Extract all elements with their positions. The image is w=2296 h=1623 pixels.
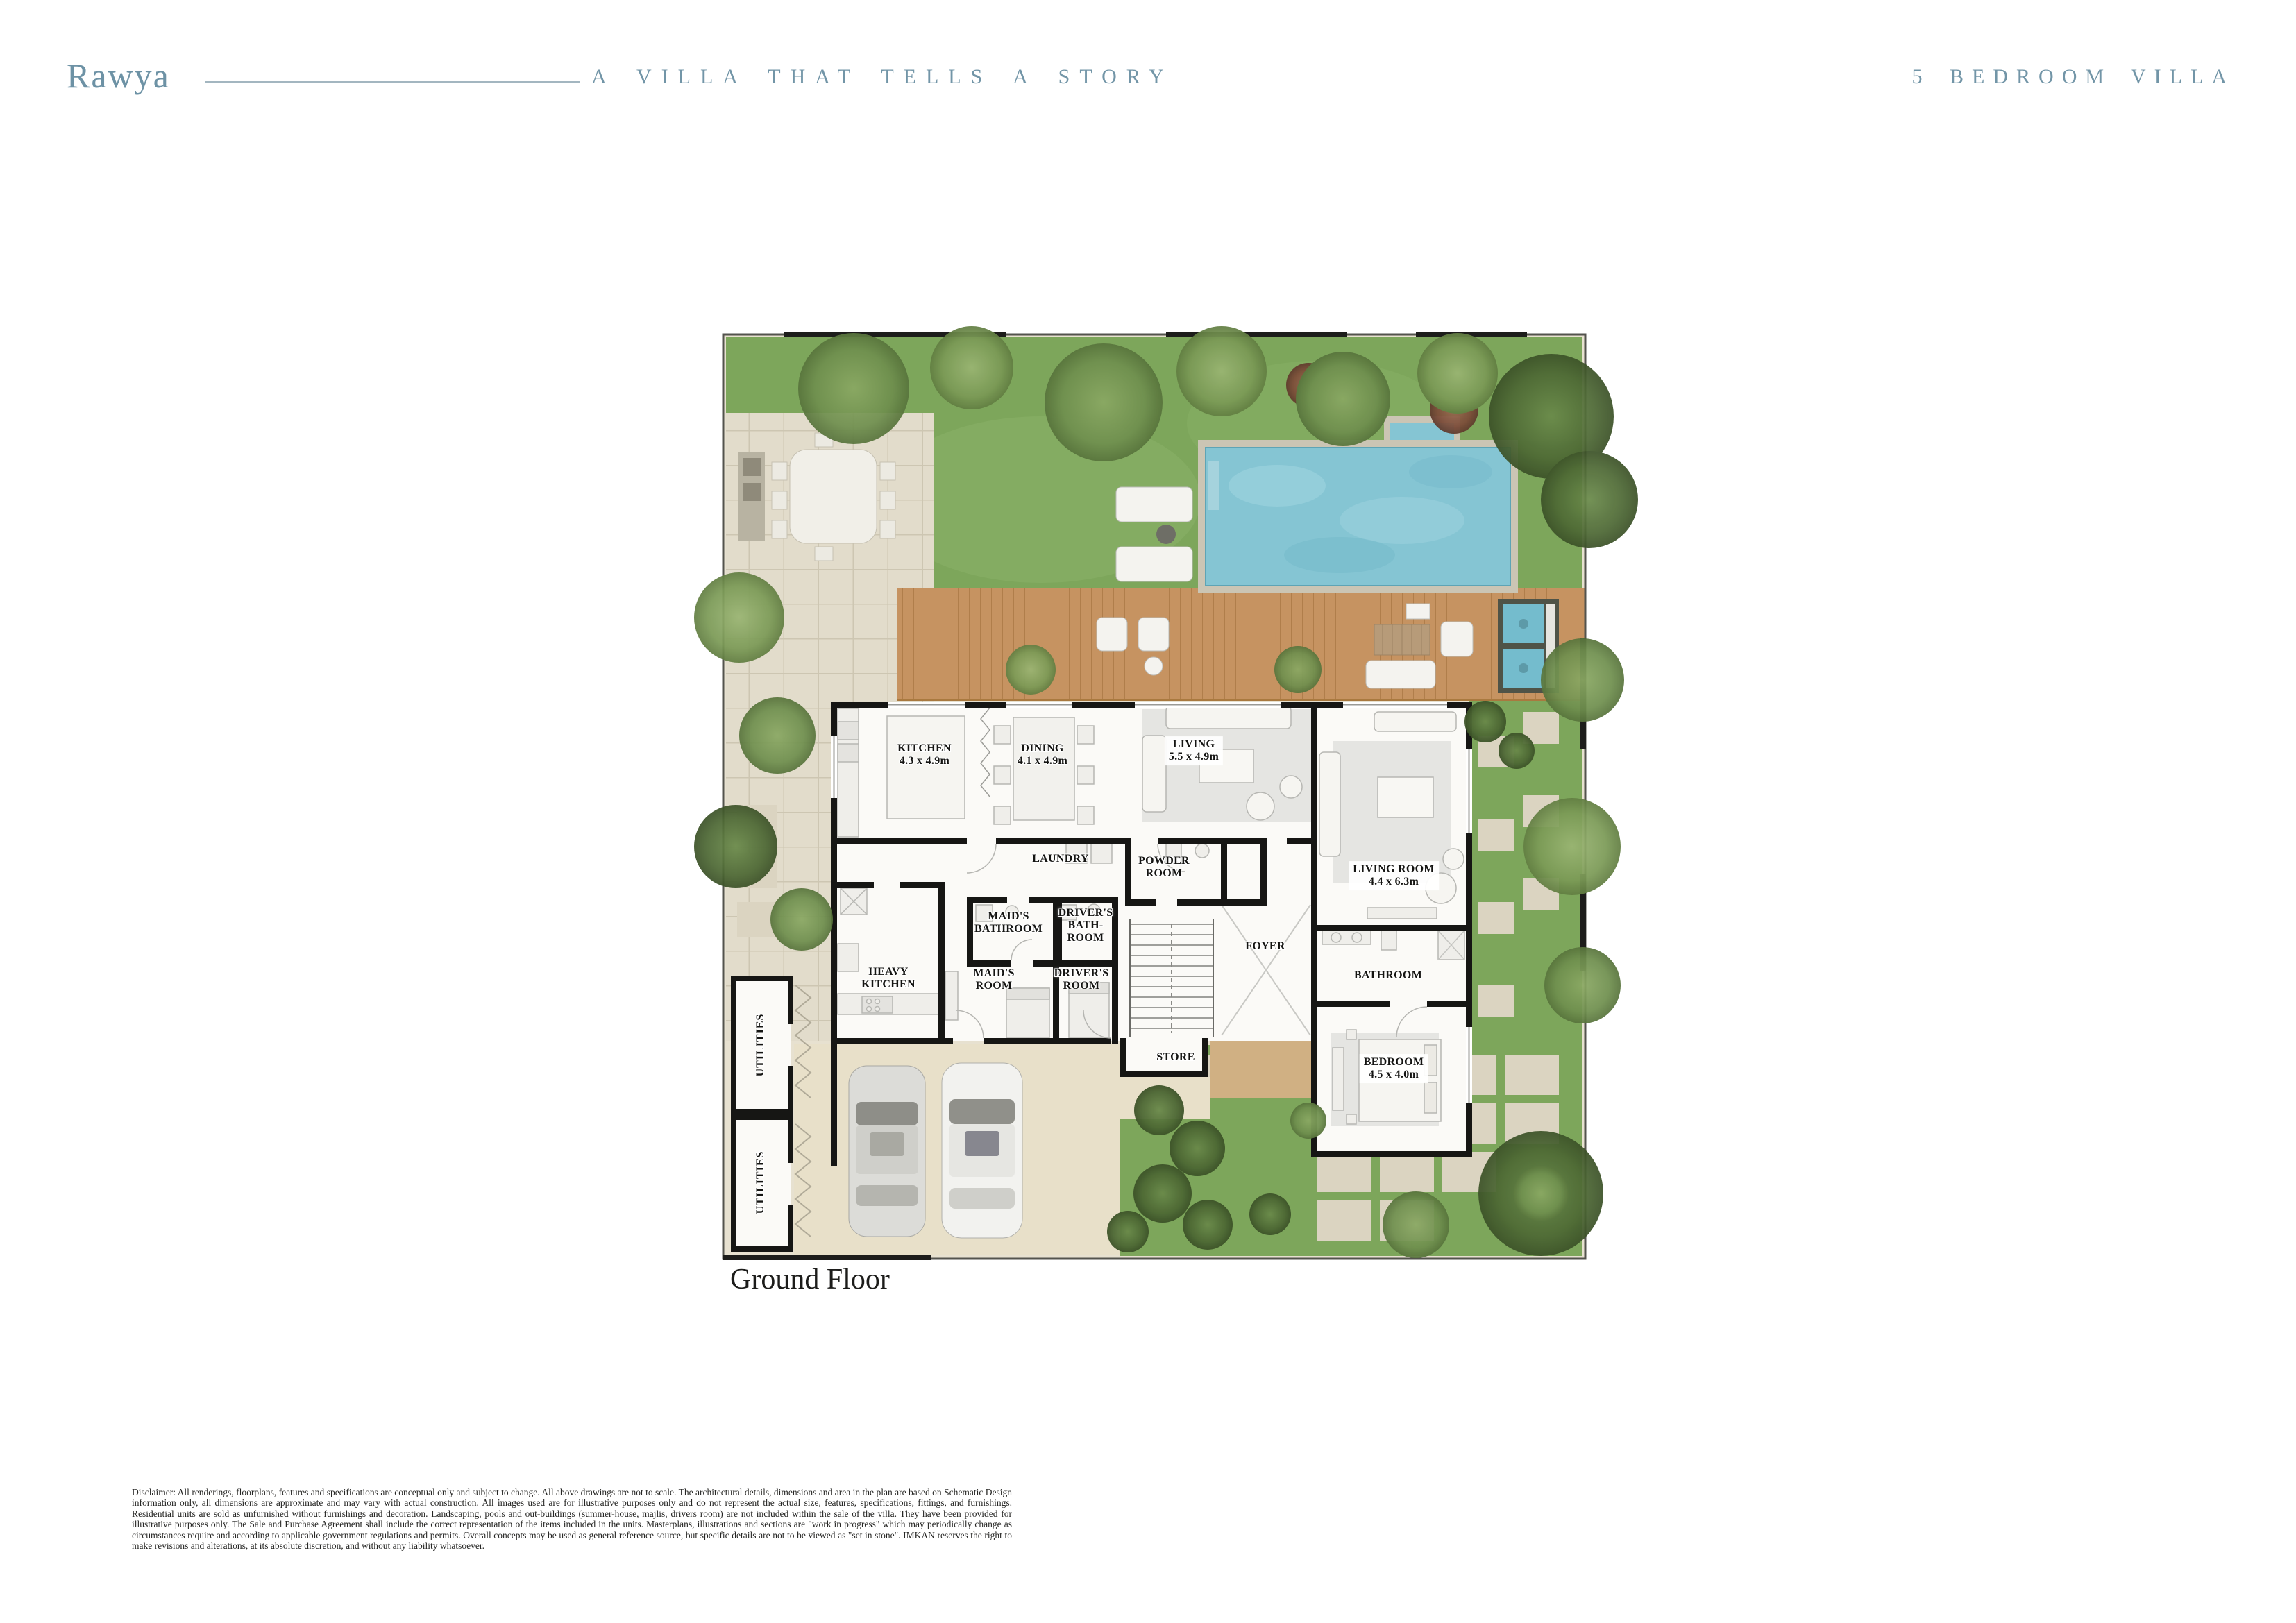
disclaimer-text: Disclaimer: All renderings, floorplans, …: [132, 1487, 1012, 1551]
tagline: A VILLA THAT TELLS A STORY: [591, 65, 1174, 89]
room-label-store: STORE: [1156, 1051, 1195, 1064]
room-label-heavy-kitchen: HEAVY KITCHEN: [856, 966, 920, 991]
car-sedan: [942, 1063, 1022, 1238]
room-label-foyer: FOYER: [1245, 940, 1285, 953]
room-label-living-room: LIVING ROOM4.4 x 6.3m: [1349, 861, 1439, 890]
room-label-maids-bathroom: MAID'S BATHROOM: [972, 910, 1045, 935]
sun-deck: [897, 588, 1585, 700]
room-label-kitchen: KITCHEN4.3 x 4.9m: [897, 742, 952, 767]
room-label-maids-room: MAID'S ROOM: [970, 967, 1018, 992]
room-label-powder-room: POWDER ROOM: [1138, 855, 1190, 880]
room-label-living: LIVING5.5 x 4.9m: [1165, 736, 1223, 765]
room-label-bathroom: BATHROOM: [1354, 969, 1422, 982]
room-label-utilities-2: UTILITIES: [754, 1151, 767, 1214]
floor-plan: KITCHEN4.3 x 4.9m DINING4.1 x 4.9m LIVIN…: [680, 291, 1652, 1263]
room-label-dining: DINING4.1 x 4.9m: [1018, 742, 1067, 767]
room-label-laundry: LAUNDRY: [1032, 853, 1089, 865]
room-label-bedroom: BEDROOM4.5 x 4.0m: [1360, 1054, 1428, 1083]
car-suv: [849, 1066, 925, 1237]
unit-type-label: 5 BEDROOM VILLA: [1912, 65, 2235, 89]
brochure-page: { "header": { "brand": "Rawya", "tagline…: [0, 0, 2296, 1623]
room-label-drivers-bathroom: DRIVER'S BATH-ROOM: [1058, 907, 1113, 944]
floor-title: Ground Floor: [730, 1263, 890, 1296]
header-divider-line: [205, 81, 580, 83]
room-label-drivers-room: DRIVER'S ROOM: [1053, 967, 1110, 992]
floor-plan-graphic: [680, 291, 1652, 1263]
brand-logo: Rawya: [67, 56, 170, 96]
room-label-utilities-1: UTILITIES: [754, 1014, 767, 1077]
